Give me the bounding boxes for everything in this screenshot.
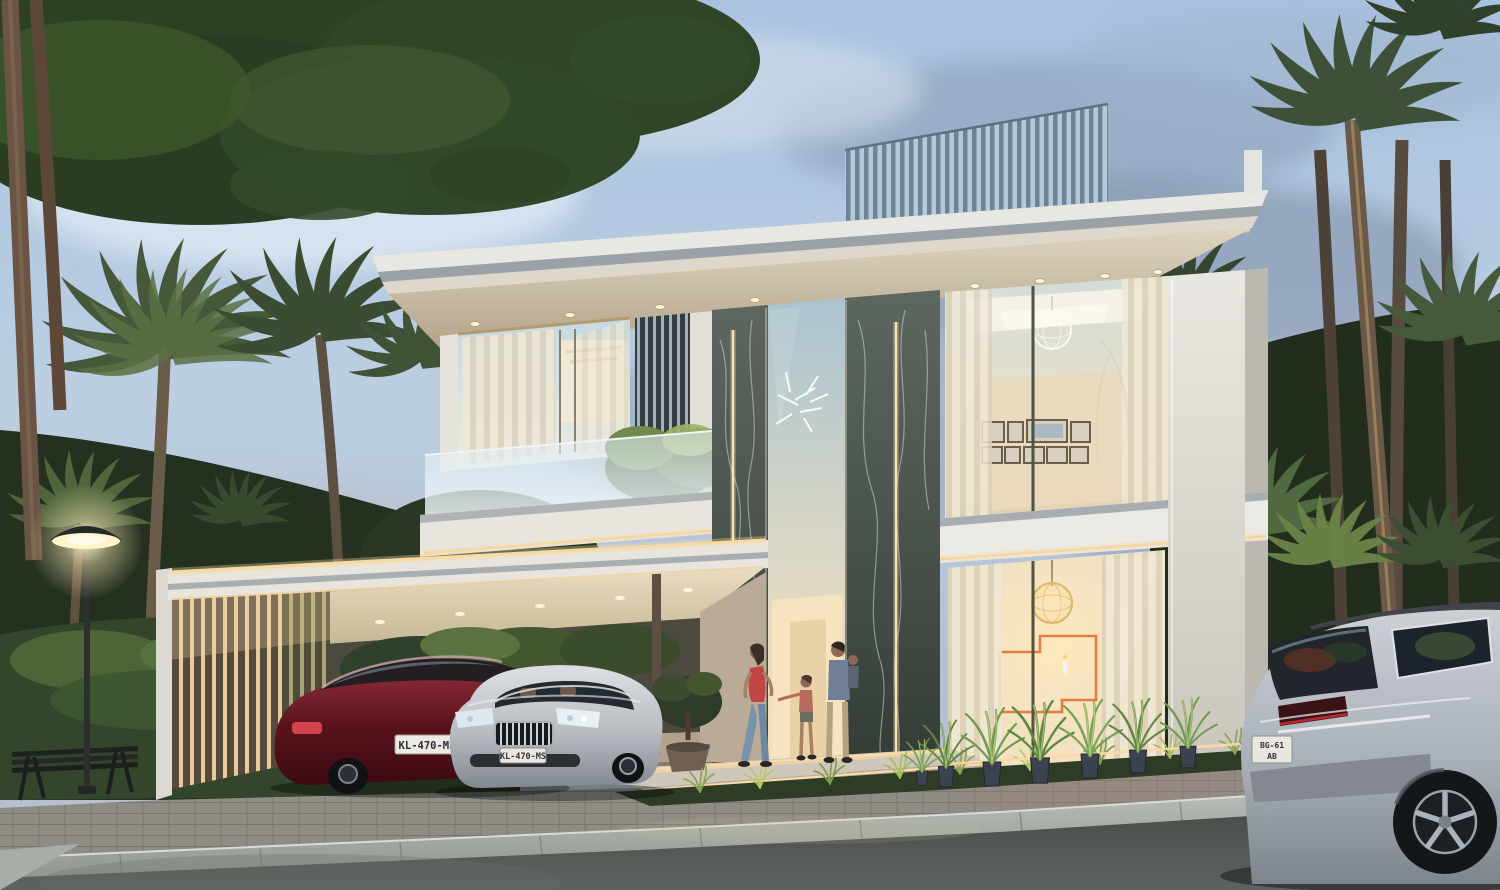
roof-parapet [1244,150,1262,194]
gold-pendant [1022,573,1082,633]
villa-render-scene: KL-470-MS KL-470-MS [0,0,1500,890]
marble-pier-right [845,290,940,778]
corner-pier [1168,270,1245,790]
upper-right-window [945,276,1168,520]
silver-sedan-grille [495,722,553,746]
carport-frame-left [156,568,172,800]
scene-canvas: KL-470-MS KL-470-MS [0,0,1500,890]
red-sedan-plate-text: KL-470-MS [399,740,456,752]
silver-sedan-plate-text: KL-470-MS [500,752,546,762]
suv-plate-text-line1: BG-61 [1260,741,1284,750]
light-reflection [620,816,980,844]
suv-plate-text-line2: AB [1267,752,1277,761]
red-sedan-taillight-left [292,722,322,734]
